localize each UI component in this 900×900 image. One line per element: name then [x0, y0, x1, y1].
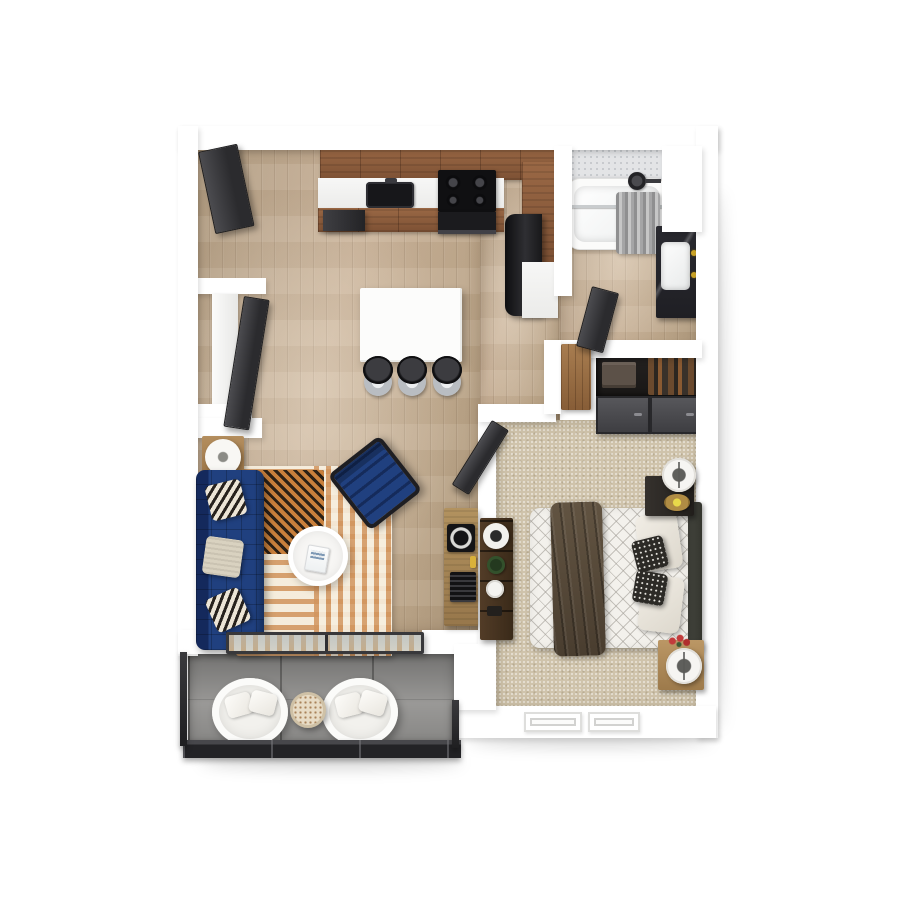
window-glass [530, 718, 576, 726]
speaker-disc-icon [483, 523, 509, 549]
chair-cushion [357, 689, 388, 717]
kitchen-end-cabinet [522, 262, 558, 318]
shower-curtain [616, 192, 660, 254]
accent-pillow [631, 569, 668, 606]
shower-tile-wall [564, 148, 670, 180]
bar-stool [397, 356, 427, 384]
shower-head-icon [628, 172, 646, 190]
balcony-railing-right [452, 700, 459, 748]
bar-stool [363, 356, 393, 384]
patio-chair [322, 678, 398, 746]
record-player-icon [447, 524, 475, 552]
dishwasher [323, 210, 365, 231]
candle-tray [664, 494, 690, 511]
sliding-glass-door [226, 632, 424, 654]
window-glass [594, 718, 634, 726]
closet-sliding-door [596, 396, 650, 434]
chair-cushion [248, 689, 279, 717]
oven [438, 212, 496, 234]
bar-stool [432, 356, 462, 384]
bed-throw [550, 501, 606, 656]
kitchen-sink [366, 182, 414, 208]
linen-closet-door [561, 344, 591, 410]
wall-bedroom-bottom [454, 706, 716, 738]
patio-table [290, 692, 326, 728]
laundry-closet-wall [186, 278, 266, 294]
ring-lamp-icon [666, 648, 702, 684]
stove-cooktop [438, 170, 496, 212]
wall-tub-surround [662, 146, 702, 232]
shower-arm [645, 179, 661, 183]
balcony-railing-left [180, 652, 187, 746]
bedroom-window [588, 712, 640, 732]
folded-clothes [602, 362, 636, 388]
clock-icon [486, 580, 504, 598]
speaker-icon [450, 572, 476, 602]
patio-chair [212, 678, 288, 746]
bedroom-window [524, 712, 582, 732]
wall-bedroom-left-corner [454, 644, 496, 710]
sofa-pillow [202, 536, 245, 579]
ring-lamp-icon [662, 458, 696, 492]
headboard [686, 502, 702, 652]
floor-plan-render [0, 0, 900, 900]
wall-linen-closet [544, 340, 561, 414]
vanity-sink [661, 242, 690, 290]
plant-icon [487, 556, 505, 574]
wall-kitchen-bathroom [554, 146, 572, 296]
flowers-icon [668, 634, 690, 648]
kitchen-island [360, 288, 462, 362]
balcony-railing [183, 740, 461, 758]
hanging-clothes [648, 357, 698, 395]
closet-sliding-door [650, 396, 702, 434]
console-book [470, 556, 476, 568]
wall-top [178, 126, 718, 150]
wall-left [178, 126, 198, 656]
dresser-tray [487, 606, 502, 616]
magazine [304, 544, 330, 573]
